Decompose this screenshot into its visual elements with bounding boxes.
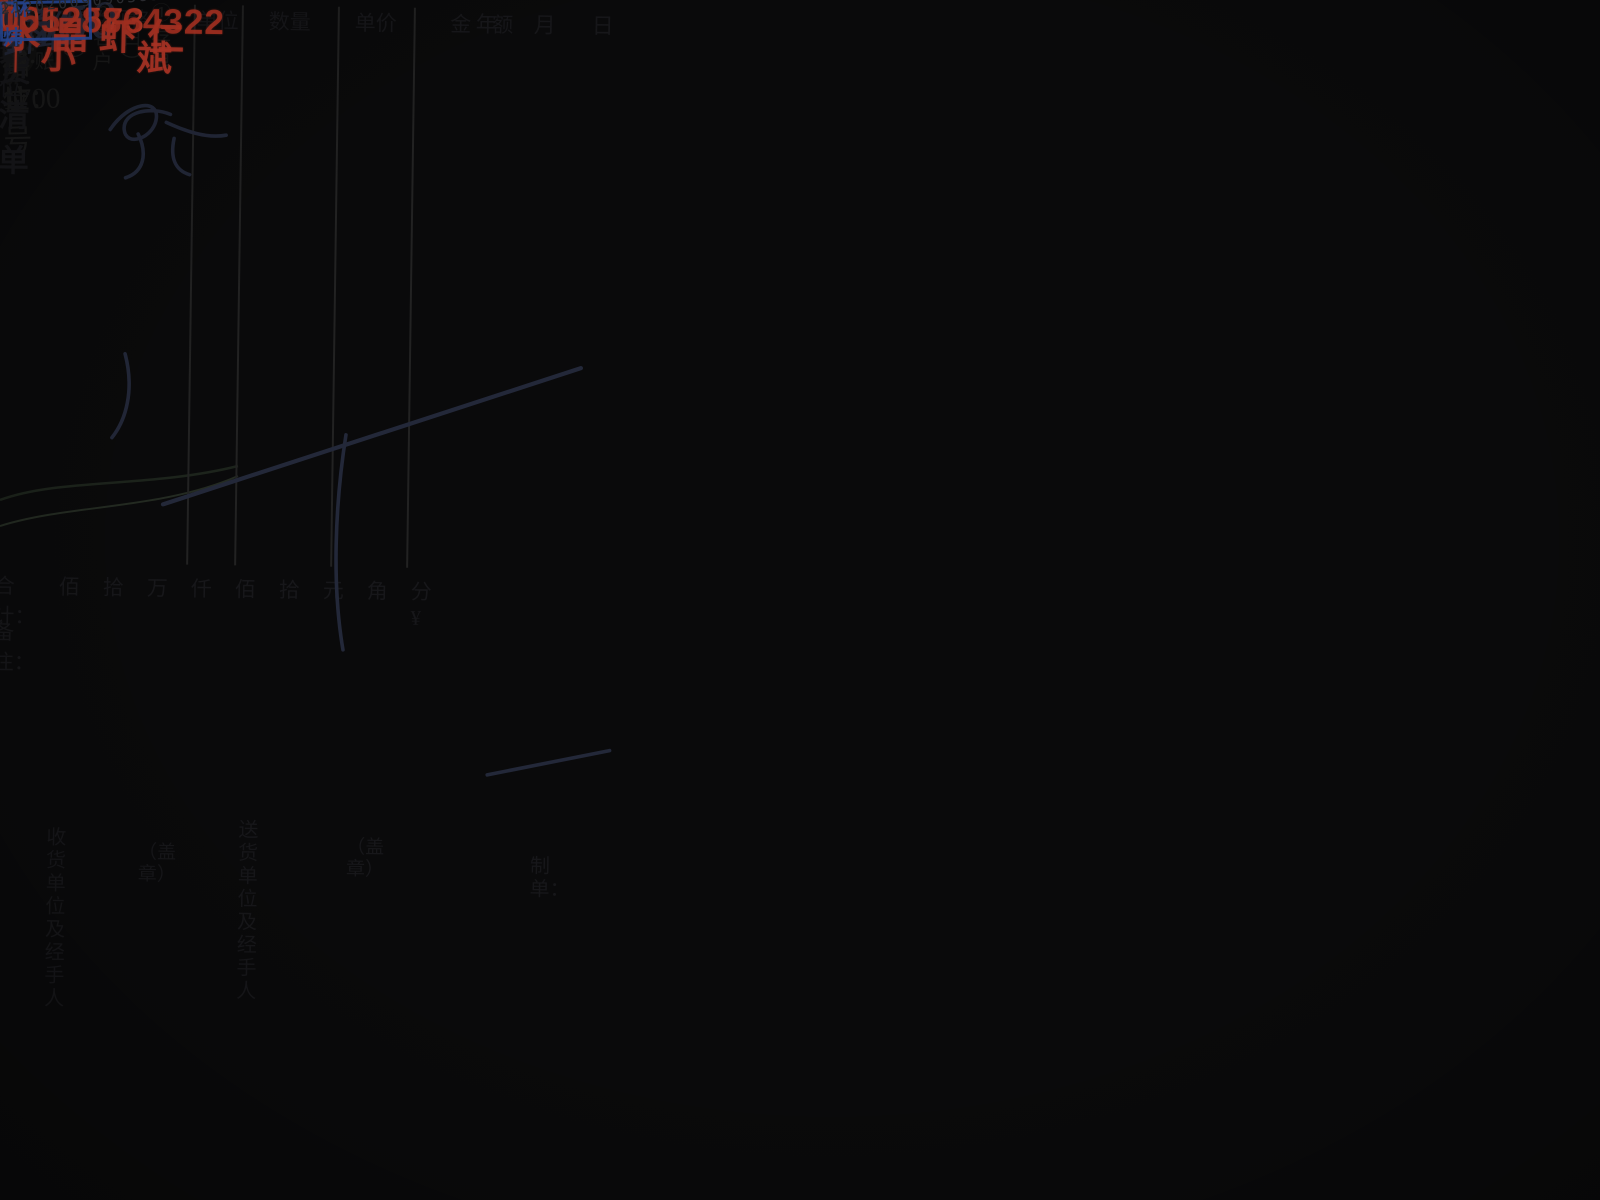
receiver-line2: 及经手人 <box>44 919 65 1011</box>
total-slash-stroke <box>163 362 581 510</box>
handwriting-strokes <box>0 0 670 909</box>
total-underline-stroke <box>487 749 609 777</box>
item-name-tail <box>112 354 130 438</box>
photo-scene: Panas 机 6 7 8 9 10 11 上海县记清单（按进国货） <box>0 0 1600 1200</box>
sender-line2: 及经手人 <box>236 911 257 1003</box>
amount-tail-stroke <box>335 435 346 650</box>
barcode-side-mark: 1 <box>0 0 10 16</box>
